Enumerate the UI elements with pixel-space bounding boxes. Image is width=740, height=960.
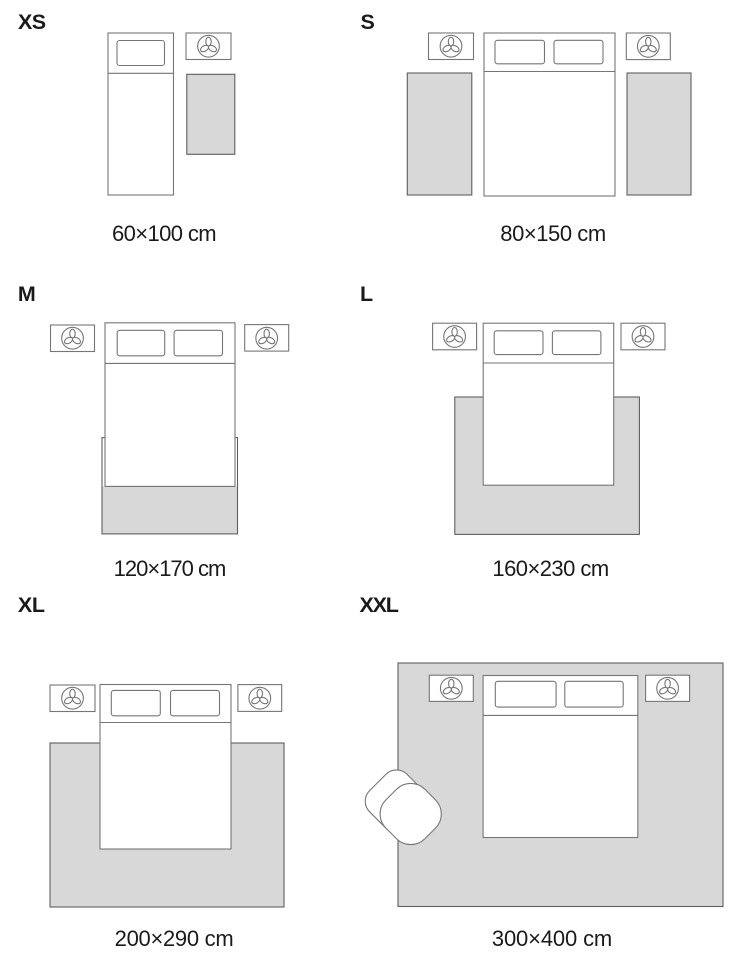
svg-text:160×230 cm: 160×230 cm (492, 556, 608, 581)
svg-text:300×400 cm: 300×400 cm (492, 926, 612, 951)
svg-text:200×290 cm: 200×290 cm (115, 926, 234, 951)
svg-text:M: M (18, 282, 36, 306)
svg-text:S: S (361, 10, 375, 34)
svg-text:XXL: XXL (360, 593, 399, 617)
svg-text:80×150 cm: 80×150 cm (500, 221, 605, 246)
svg-text:XL: XL (18, 593, 45, 617)
svg-text:L: L (360, 282, 373, 306)
svg-text:120×170 cm: 120×170 cm (114, 556, 226, 581)
svg-text:XS: XS (18, 10, 46, 34)
svg-text:60×100 cm: 60×100 cm (112, 221, 216, 246)
